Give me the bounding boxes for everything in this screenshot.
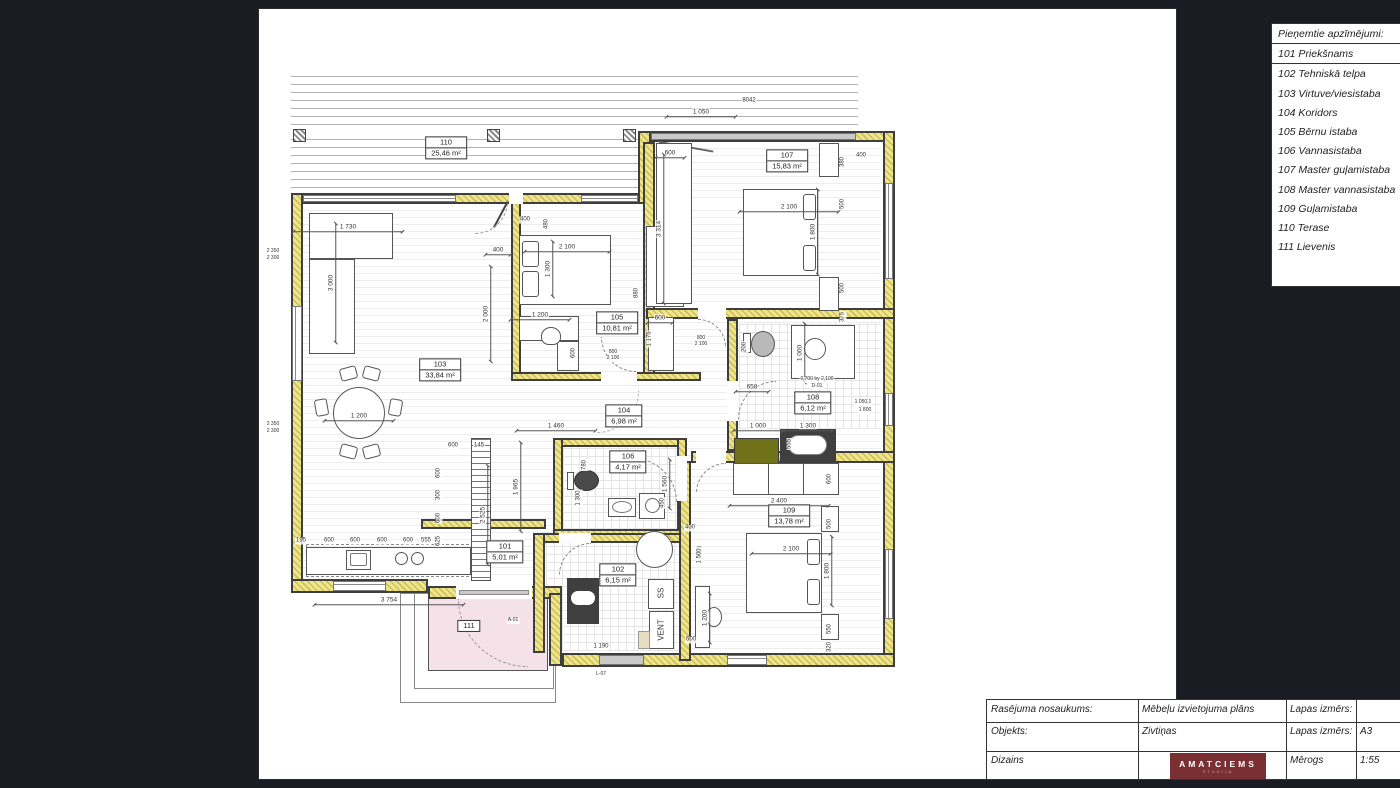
door-gap [696, 451, 726, 463]
window [885, 183, 893, 279]
pillow [803, 245, 816, 271]
door-gap [677, 456, 687, 501]
wardrobe [733, 463, 839, 495]
titleblock-divider [987, 722, 1400, 723]
room-label-110: 11025,46 m² [425, 136, 467, 159]
door-gap [601, 372, 637, 381]
room-number: 103 [420, 359, 460, 370]
toilet-bowl [751, 331, 775, 357]
dimension-label: L-07 [595, 672, 607, 678]
scale-value: 1:55 [1360, 755, 1379, 766]
box [638, 631, 650, 649]
kitchen-hob [395, 552, 408, 565]
legend-item: 106 Vannasistaba [1272, 141, 1400, 160]
room-area: 15,83 m² [767, 162, 807, 172]
dimension-text: 2 300 [266, 429, 281, 435]
room-area: 5,01 m² [487, 553, 522, 563]
dimension-text: 3 754 [380, 596, 398, 603]
legend-title: Pieņemtie apzīmējumi: [1272, 24, 1400, 44]
wardrobe [656, 143, 692, 304]
pillow [803, 194, 816, 220]
door-gap [509, 193, 523, 204]
shower-drain [645, 498, 660, 513]
legend-item: 110 Terase [1272, 218, 1400, 237]
dimension-text: 2 350 [266, 249, 281, 255]
window [885, 393, 893, 426]
wall-left [291, 193, 303, 593]
drawing-sheet: 11025,46 m²10333,84 m²10510,81 m²10715,8… [258, 8, 1177, 780]
object-label: Objekts: [991, 726, 1028, 737]
legend-item: 101 Priekšnams [1272, 44, 1400, 64]
ss-unit [648, 579, 674, 609]
dimension-text: L-07 [595, 672, 607, 678]
legend-item: 103 Virtuve/viesistaba [1272, 83, 1400, 102]
sofa [309, 213, 393, 259]
sink-basin [612, 501, 632, 513]
wall-porch-right [549, 593, 562, 666]
scale-label: Mērogs [1290, 755, 1323, 766]
dimension-label: 2 350 [266, 422, 281, 428]
legend-item: 102 Tehniskā telpa [1272, 64, 1400, 83]
room-label-109: 10913,78 m² [768, 504, 810, 527]
sink [804, 338, 826, 360]
chair [541, 327, 561, 345]
room-area: 6,15 m² [600, 576, 635, 586]
titleblock-divider [1138, 700, 1139, 781]
washer-drum [571, 591, 595, 605]
wall-interior [553, 438, 563, 538]
boiler [636, 531, 673, 568]
logo-subtext: STUDIJA [1170, 769, 1266, 774]
dimension-text: 2 350 [266, 422, 281, 428]
room-label-101: 1015,01 m² [486, 540, 523, 563]
window [292, 306, 302, 381]
legend-item: 107 Master guļamistaba [1272, 160, 1400, 179]
room-number: 102 [600, 564, 635, 575]
floor-plan: 11025,46 m²10333,84 m²10510,81 m²10715,8… [1, 1, 1400, 788]
titleblock-divider [1286, 700, 1287, 781]
legend-item: 108 Master vannasistaba [1272, 179, 1400, 198]
dimension-label: 2 350 [266, 249, 281, 255]
sheet-size-label-1: Lapas izmērs: [1290, 704, 1352, 715]
room-label-104: 1046,98 m² [605, 404, 642, 427]
legend-item: 105 Bērnu istaba [1272, 122, 1400, 141]
legend-items: 101 Priekšnams102 Tehniskā telpa103 Virt… [1272, 44, 1400, 256]
room-label-111: 111 [457, 620, 480, 632]
legend-box: Pieņemtie apzīmējumi: 101 Priekšnams102 … [1271, 23, 1400, 287]
window [303, 195, 456, 202]
room-area: 25,46 m² [426, 149, 466, 159]
kitchen-sink-basin [350, 553, 367, 566]
room-area: 33,84 m² [420, 371, 460, 381]
vent-unit [649, 611, 674, 649]
wall-interior [533, 533, 545, 653]
desk [557, 341, 579, 371]
room-number: 106 [610, 451, 645, 462]
room-number: 109 [769, 505, 809, 516]
cabinet-olive [734, 438, 779, 464]
dining-table [333, 387, 385, 439]
dimension-label: 2 300 [266, 429, 281, 435]
slider-door [651, 133, 856, 140]
window [885, 549, 893, 619]
titleblock-divider [987, 751, 1400, 752]
amatciems-logo: AMATCIEMS STUDIJA [1170, 753, 1266, 779]
room-label-102: 1026,15 m² [599, 563, 636, 586]
title-block: Rasējuma nosaukums: Mēbeļu izvietojuma p… [986, 699, 1400, 780]
pillow [522, 241, 539, 267]
room-number: 101 [487, 541, 522, 552]
window [581, 195, 638, 202]
sofa [309, 259, 355, 354]
room-number: 105 [597, 312, 637, 323]
room-area: 6,12 m² [795, 404, 830, 414]
room-label-105: 10510,81 m² [596, 311, 638, 334]
kitchen-counter [306, 547, 471, 575]
wall-interior [646, 308, 895, 319]
room-number: 107 [767, 150, 807, 161]
logo-text: AMATCIEMS [1170, 753, 1266, 769]
nightstand [819, 277, 839, 311]
pillow [807, 579, 820, 605]
window [333, 581, 386, 591]
terrace-post [623, 129, 636, 142]
toilet-tank [743, 333, 751, 353]
toilet-tank [567, 472, 574, 490]
dimension-label: 2 300 [266, 256, 281, 262]
door-sill [459, 590, 529, 595]
drawing-name-value: Mēbeļu izvietojuma plāns [1142, 704, 1254, 715]
object-value: Zivtiņas [1142, 726, 1176, 737]
legend-item: 111 Lievenis [1272, 237, 1400, 256]
room-label-107: 10715,83 m² [766, 149, 808, 172]
room-label-106: 1064,17 m² [609, 450, 646, 473]
door-sill [599, 655, 644, 665]
terrace-post [487, 129, 500, 142]
design-label: Dizains [991, 755, 1024, 766]
room-area: 13,78 m² [769, 517, 809, 527]
chair [314, 398, 330, 417]
dimension-text: 2 300 [266, 256, 281, 262]
room-label-108: 1086,12 m² [794, 391, 831, 414]
nightstand [819, 143, 839, 177]
room-number: 108 [795, 392, 830, 403]
room-label-103: 10333,84 m² [419, 358, 461, 381]
kitchen-hob [411, 552, 424, 565]
room-number: 104 [606, 405, 641, 416]
legend-item: 104 Koridors [1272, 103, 1400, 122]
pillow [807, 539, 820, 565]
screenshot-stage: 11025,46 m²10333,84 m²10510,81 m²10715,8… [0, 0, 1400, 788]
room-area: 4,17 m² [610, 463, 645, 473]
room-area: 10,81 m² [597, 324, 637, 334]
drawing-name-label: Rasējuma nosaukums: [991, 704, 1093, 715]
room-area: 6,98 m² [606, 417, 641, 427]
toilet-bowl [574, 470, 599, 491]
nightstand [821, 614, 839, 640]
terrace-deck [291, 69, 858, 132]
legend-item: 109 Guļamistaba [1272, 199, 1400, 218]
sink-basin [788, 435, 827, 455]
pillow [522, 271, 539, 297]
door-gap [727, 381, 738, 421]
wall-interior [553, 438, 687, 447]
window [727, 655, 767, 665]
terrace-post [293, 129, 306, 142]
sheet-size-label-2: Lapas izmērs: [1290, 726, 1352, 737]
sheet-size-value-2: A3 [1360, 726, 1372, 737]
chair [706, 607, 722, 627]
door-gap [698, 308, 726, 319]
titleblock-divider [1356, 700, 1357, 781]
door-gap [559, 533, 591, 543]
cabinet [648, 317, 674, 371]
nightstand [821, 506, 839, 532]
room-number: 110 [426, 137, 466, 148]
